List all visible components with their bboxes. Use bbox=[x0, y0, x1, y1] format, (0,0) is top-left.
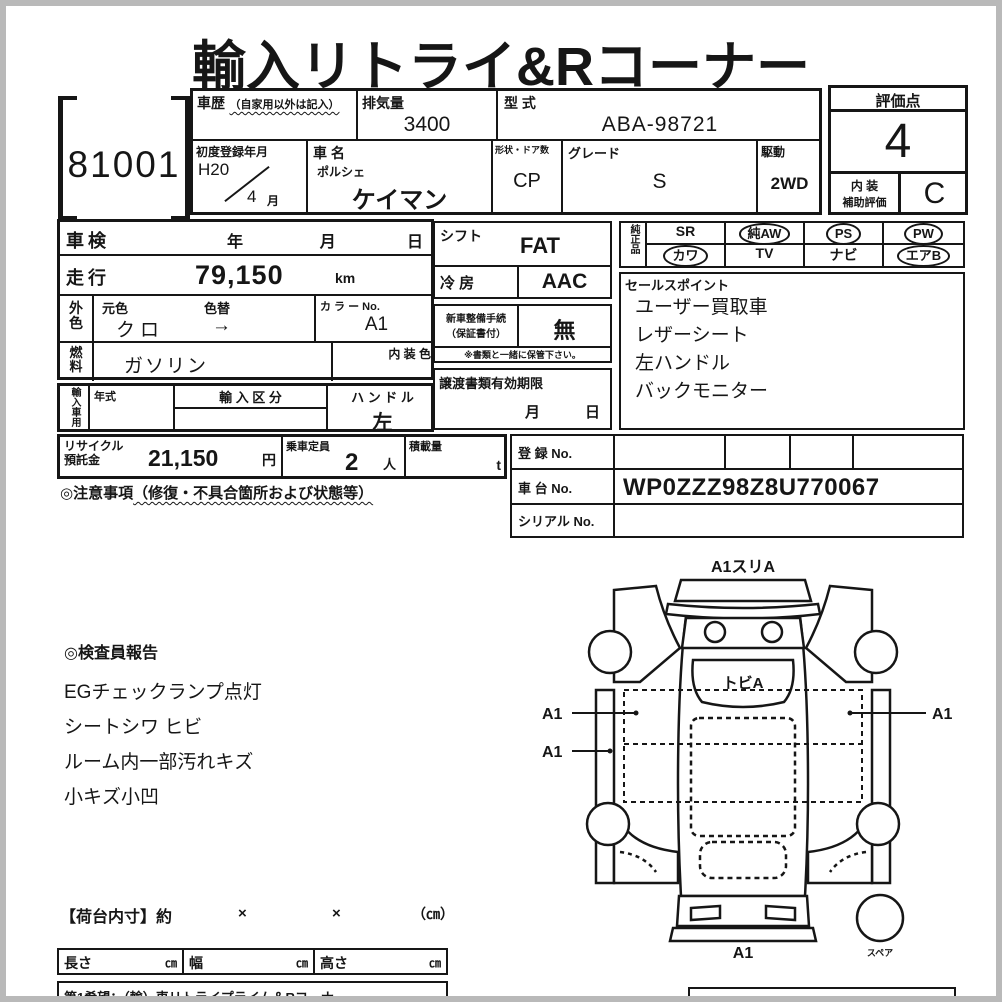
handle-cell: ハ ン ド ル 左 bbox=[328, 386, 437, 429]
recycle-row: リサイクル 預託金 21,150 円 乗車定員 2 人 積載量 t bbox=[57, 434, 507, 479]
left-rocker-panel bbox=[596, 690, 614, 883]
front-bumper-lip bbox=[666, 604, 820, 619]
reg-no-label: 登 録 No. bbox=[518, 446, 572, 461]
shift-ac-box: シフト FAT 冷 房 AAC bbox=[433, 221, 612, 299]
score-box: 評価点 4 内 装 補助評価 C bbox=[828, 85, 968, 215]
cargo-width-unit: ㎝ bbox=[296, 954, 308, 971]
import-label: 輸入車用 bbox=[69, 387, 79, 427]
transfer-month: 月 bbox=[525, 401, 540, 422]
mileage-unit: km bbox=[335, 270, 355, 286]
inspector-item: 小キズ小凹 bbox=[64, 780, 262, 815]
cargo-times-2: × bbox=[332, 905, 341, 922]
score-label: 評価点 bbox=[831, 88, 965, 112]
displacement-value: 3400 bbox=[362, 113, 492, 137]
shift-row: シフト FAT bbox=[435, 223, 610, 267]
cargo-heading: 【荷台内寸】約 bbox=[60, 903, 172, 927]
notice-prefix: ◎注意事項 bbox=[60, 485, 133, 502]
left-note2-dot bbox=[608, 749, 613, 754]
equipment-item-sr: SR bbox=[647, 223, 726, 245]
history-note: （自家用以外は記入） bbox=[229, 99, 339, 111]
recycle-label-2: 預託金 bbox=[64, 454, 123, 468]
seats-unit: 人 bbox=[383, 454, 396, 473]
cargo-length-cell: 長さ ㎝ bbox=[59, 950, 184, 973]
keep-note: ※書類と一緒に保管下さい。 bbox=[435, 348, 610, 361]
model-code-label: 型 式 bbox=[504, 93, 816, 113]
registration-box: 登 録 No. 車 台 No. WP0ZZZ98Z8U770067 シリアル N… bbox=[510, 434, 964, 538]
right-note-dot bbox=[848, 711, 853, 716]
load-cell: 積載量 t bbox=[406, 437, 507, 476]
auction-sheet: 輸入リトライ&Rコーナー 81001 車歴 （自家用以外は記入） 排気量 340… bbox=[0, 0, 1002, 1002]
reg-divider bbox=[724, 436, 726, 468]
prep-label-2: （保証書付） bbox=[435, 325, 517, 340]
left-damage-note-2: A1 bbox=[542, 744, 563, 761]
inspector-item: EGチェックランプ点灯 bbox=[64, 675, 262, 710]
sales-points-label: セールスポイント bbox=[621, 274, 963, 294]
interior-color-label: 内 装 色 bbox=[333, 343, 437, 362]
car-body-outline bbox=[678, 616, 808, 896]
first-reg-label: 初度登録年月 bbox=[196, 143, 303, 160]
mileage-row: 走行 79,150 km bbox=[60, 256, 431, 296]
drive-cell: 駆動 2WD bbox=[758, 141, 821, 214]
mileage-label: 走行 bbox=[66, 264, 110, 290]
shift-label: シフト bbox=[440, 226, 482, 246]
cargo-height-label: 高さ bbox=[320, 953, 348, 973]
sales-point-item: 左ハンドル bbox=[635, 350, 963, 378]
equipment-item-navi: ナビ bbox=[805, 245, 884, 266]
fuel-label-cell: 燃料 bbox=[60, 343, 94, 381]
fuel-value-cell: ガソリン bbox=[94, 343, 333, 381]
recycle-unit: 円 bbox=[262, 450, 276, 470]
equipment-item-pw: PW bbox=[884, 223, 963, 245]
load-label: 積載量 bbox=[409, 438, 442, 454]
rear-bumper bbox=[677, 896, 809, 926]
model-code-cell: 型 式 ABA-98721 bbox=[498, 91, 822, 141]
handle-label: ハ ン ド ル bbox=[328, 386, 437, 406]
equipment-item-kawa: カワ bbox=[647, 245, 726, 266]
drive-value: 2WD bbox=[761, 174, 818, 194]
shaken-label: 車検 bbox=[66, 227, 110, 253]
interior-color-cell: 内 装 色 bbox=[333, 343, 437, 381]
equipment-item-ps: PS bbox=[805, 223, 884, 245]
equipment-item-aw: 純AW bbox=[726, 223, 805, 245]
left-damage-note-1: A1 bbox=[542, 706, 563, 723]
base-color-value: クロ bbox=[116, 315, 164, 342]
left-rear-wheel bbox=[587, 803, 629, 845]
import-label-cell: 輸入車用 bbox=[60, 386, 90, 429]
shape-value: CP bbox=[495, 170, 559, 193]
displacement-label: 排気量 bbox=[362, 93, 492, 113]
chassis-value-cell: WP0ZZZ98Z8U770067 bbox=[615, 470, 962, 505]
recycle-label-1: リサイクル bbox=[64, 440, 123, 454]
sales-points-box: セールスポイント ユーザー買取車 レザーシート 左ハンドル バックモニター bbox=[619, 272, 965, 430]
cargo-height-cell: 高さ ㎝ bbox=[315, 950, 446, 973]
cargo-unit-note: （㎝） bbox=[412, 904, 454, 924]
inspector-item: シートシワ ヒビ bbox=[64, 710, 262, 745]
cargo-heading-row: 【荷台内寸】約 × × （㎝） bbox=[60, 903, 460, 927]
grade-value: S bbox=[568, 170, 751, 194]
interior-label-2: 補助評価 bbox=[831, 194, 898, 210]
rear-bumper-lip bbox=[670, 928, 816, 941]
details-table: 車検 年 月 日 走行 79,150 km 外色 元色 色替 クロ → カ ラ … bbox=[57, 219, 434, 380]
chassis-label-cell: 車 台 No. bbox=[512, 470, 615, 505]
inspector-heading: ◎検査員報告 bbox=[64, 639, 262, 663]
equipment-grid: 純正品 SR 純AW PS PW カワ TV ナビ エアB bbox=[619, 221, 965, 268]
equipment-item-tv: TV bbox=[726, 245, 805, 266]
maker-name: ポルシェ bbox=[317, 163, 486, 180]
headlight-panel bbox=[682, 618, 804, 648]
ac-label: 冷 房 bbox=[440, 272, 474, 293]
shaken-year: 年 bbox=[227, 228, 243, 252]
recycle-cell: リサイクル 預託金 21,150 円 bbox=[60, 437, 283, 476]
prep-box: 新車整備手続 （保証書付） 無 ※書類と一緒に保管下さい。 bbox=[433, 304, 612, 363]
equipment-item-airb: エアB bbox=[884, 245, 963, 266]
shaken-row: 車検 年 月 日 bbox=[60, 222, 431, 256]
sales-point-item: バックモニター bbox=[635, 378, 963, 406]
equipment-label: 純正品 bbox=[628, 224, 638, 254]
car-name-value: ケイマン bbox=[313, 180, 486, 215]
import-class-cell: 輸 入 区 分 bbox=[175, 386, 328, 429]
notice-line: ◎注意事項（修復・不具合箇所および状態等） bbox=[60, 482, 373, 503]
sales-point-item: レザーシート bbox=[635, 322, 963, 350]
import-table: 輸入車用 年式 輸 入 区 分 ハ ン ド ル 左 bbox=[57, 383, 434, 432]
model-year-cell: 年式 bbox=[90, 386, 175, 429]
ext-color-label-cell: 外色 bbox=[60, 296, 94, 343]
reg-divider bbox=[852, 436, 854, 468]
vehicle-grid: 車歴 （自家用以外は記入） 排気量 3400 型 式 ABA-98721 初度登… bbox=[190, 88, 822, 215]
prep-label-1: 新車整備手続 bbox=[435, 310, 517, 325]
cargo-width-cell: 幅 ㎝ bbox=[184, 950, 315, 973]
ext-color-label: 外色 bbox=[69, 301, 84, 331]
car-name-label: 車 名 bbox=[313, 143, 486, 163]
equipment-label-cell: 純正品 bbox=[621, 223, 647, 266]
reg-no-value-cell bbox=[615, 436, 962, 470]
cargo-width-label: 幅 bbox=[189, 953, 203, 973]
shaken-month: 月 bbox=[320, 228, 336, 252]
interior-label-1: 内 装 bbox=[831, 177, 898, 194]
serial-label-cell: シリアル No. bbox=[512, 505, 615, 536]
shift-value: FAT bbox=[520, 233, 560, 259]
handle-value: 左 bbox=[328, 406, 437, 435]
right-damage-note: A1 bbox=[932, 706, 953, 723]
color-no-cell: カ ラ ー No. A1 bbox=[316, 296, 437, 343]
shaken-day: 日 bbox=[407, 228, 423, 252]
inspector-item: ルーム内一部汚れキズ bbox=[64, 745, 262, 780]
windshield-damage-note: トビA bbox=[723, 675, 764, 692]
shape-label: 形状・ドア数 bbox=[495, 143, 559, 156]
drive-label: 駆動 bbox=[761, 143, 818, 160]
color-no-label: カ ラ ー No. bbox=[316, 296, 437, 314]
displacement-cell: 排気量 3400 bbox=[358, 91, 498, 141]
shape-cell: 形状・ドア数 CP bbox=[493, 141, 563, 214]
serial-value-cell bbox=[615, 505, 962, 536]
cargo-times-1: × bbox=[238, 905, 247, 922]
first-reg-cell: 初度登録年月 H20 4 月 bbox=[193, 141, 308, 214]
first-reg-month-suffix: 月 bbox=[267, 192, 279, 209]
history-cell: 車歴 （自家用以外は記入） bbox=[193, 91, 358, 141]
fuel-value: ガソリン bbox=[124, 351, 208, 378]
sales-point-item: ユーザー買取車 bbox=[635, 294, 963, 322]
mileage-value: 79,150 bbox=[195, 260, 284, 291]
model-code-value: ABA-98721 bbox=[504, 113, 816, 137]
first-reg-month: 4 bbox=[247, 187, 256, 207]
cargo-table: 長さ ㎝ 幅 ㎝ 高さ ㎝ bbox=[57, 948, 448, 975]
headlight-left bbox=[705, 622, 725, 642]
front-damage-note: A1スリA bbox=[711, 559, 775, 576]
interior-score-label-cell: 内 装 補助評価 bbox=[831, 174, 901, 215]
lot-number: 81001 bbox=[58, 144, 190, 186]
import-class-label: 輸 入 区 分 bbox=[175, 386, 326, 409]
headlight-right bbox=[762, 622, 782, 642]
reg-no-label-cell: 登 録 No. bbox=[512, 436, 615, 470]
spare-tire-circle bbox=[857, 895, 903, 941]
seats-value: 2 bbox=[345, 449, 358, 477]
cargo-height-unit: ㎝ bbox=[429, 954, 441, 971]
car-damage-diagram: A1スリA トビA A1 A1 A1 A1 スペア bbox=[528, 556, 990, 962]
notice-detail: （修復・不具合箇所および状態等） bbox=[133, 485, 373, 502]
chassis-value: WP0ZZZ98Z8U770067 bbox=[623, 474, 880, 502]
repaint-arrow: → bbox=[212, 315, 231, 337]
model-year-label: 年式 bbox=[94, 391, 116, 403]
cargo-length-unit: ㎝ bbox=[165, 954, 177, 971]
prep-label-cell: 新車整備手続 （保証書付） bbox=[435, 306, 519, 348]
color-no-value: A1 bbox=[316, 314, 437, 336]
recycle-amount: 21,150 bbox=[148, 445, 218, 472]
first-reg-year: H20 bbox=[198, 160, 229, 180]
base-color-cell: 元色 色替 クロ → bbox=[94, 296, 316, 343]
right-rear-wheel bbox=[857, 803, 899, 845]
lot-number-box: 81001 bbox=[58, 96, 190, 212]
car-name-cell: 車 名 ポルシェ ケイマン bbox=[308, 141, 493, 214]
seats-label: 乗車定員 bbox=[286, 438, 330, 454]
transfer-box: 譲渡書類有効期限 月 日 bbox=[433, 368, 612, 430]
transfer-label: 譲渡書類有効期限 bbox=[435, 370, 610, 392]
fuel-label: 燃料 bbox=[69, 346, 83, 374]
left-note1-dot bbox=[634, 711, 639, 716]
load-unit: t bbox=[496, 457, 501, 473]
left-front-wheel bbox=[589, 631, 631, 673]
right-front-wheel bbox=[855, 631, 897, 673]
rear-damage-note: A1 bbox=[733, 945, 754, 962]
grade-label: グレード bbox=[568, 143, 751, 162]
spare-tire-label: スペア bbox=[867, 948, 893, 958]
front-bumper bbox=[675, 580, 811, 601]
score-value: 4 bbox=[831, 112, 965, 174]
footer-request-text: 第1希望：（輸）車リトライプライム＆Rコーナー bbox=[59, 983, 446, 1002]
history-label: 車歴 bbox=[197, 95, 225, 111]
ac-label-cell: 冷 房 bbox=[435, 267, 519, 297]
transfer-day: 日 bbox=[585, 401, 600, 422]
seats-cell: 乗車定員 2 人 bbox=[283, 437, 406, 476]
inspector-report: ◎検査員報告 EGチェックランプ点灯 シートシワ ヒビ ルーム内一部汚れキズ 小… bbox=[64, 639, 262, 815]
cargo-length-label: 長さ bbox=[64, 953, 92, 973]
ac-value: AAC bbox=[519, 267, 610, 297]
prep-value: 無 bbox=[519, 306, 610, 348]
interior-score-value: C bbox=[901, 174, 968, 215]
footer-request-box: 第1希望：（輸）車リトライプライム＆Rコーナー bbox=[57, 981, 448, 1002]
right-rocker-panel bbox=[872, 690, 890, 883]
chassis-label: 車 台 No. bbox=[518, 481, 572, 496]
serial-label: シリアル No. bbox=[518, 514, 594, 529]
footer-right-box bbox=[688, 987, 956, 1002]
grade-cell: グレード S bbox=[563, 141, 758, 214]
reg-divider bbox=[789, 436, 791, 468]
